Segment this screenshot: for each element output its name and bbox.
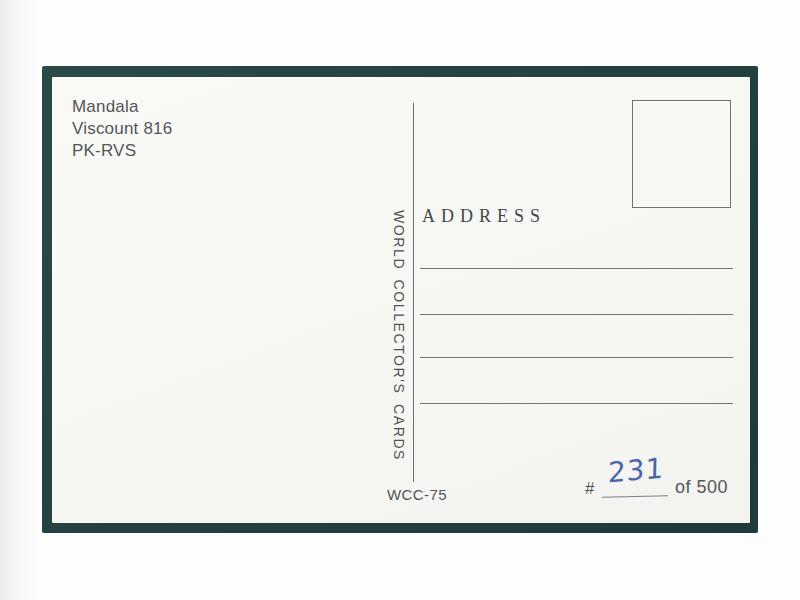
card-code: WCC-75 xyxy=(382,486,452,503)
scan-background: Mandala Viscount 816 PK-RVS WORLD COLLEC… xyxy=(0,0,800,600)
serial-underline xyxy=(602,495,668,497)
stamp-box xyxy=(632,100,731,208)
serial-handwritten-number: 231 xyxy=(604,454,668,488)
caption-line-subject: Mandala xyxy=(72,96,172,118)
address-line xyxy=(420,357,733,358)
caption-line-registration: PK-RVS xyxy=(72,140,172,162)
brand-vertical-text: WORLD COLLECTOR'S CARDS xyxy=(388,210,407,452)
address-label: ADDRESS xyxy=(422,206,546,227)
postcard-back: Mandala Viscount 816 PK-RVS WORLD COLLEC… xyxy=(52,77,750,523)
postcard-frame: Mandala Viscount 816 PK-RVS WORLD COLLEC… xyxy=(42,66,758,533)
caption-block: Mandala Viscount 816 PK-RVS xyxy=(72,96,172,162)
address-line xyxy=(420,268,733,269)
caption-line-aircraft: Viscount 816 xyxy=(72,118,172,140)
serial-suffix: of 500 xyxy=(675,477,728,498)
divider-line xyxy=(413,103,414,482)
serial-prefix: # xyxy=(585,479,594,499)
address-line xyxy=(420,314,733,315)
address-line xyxy=(420,403,733,404)
